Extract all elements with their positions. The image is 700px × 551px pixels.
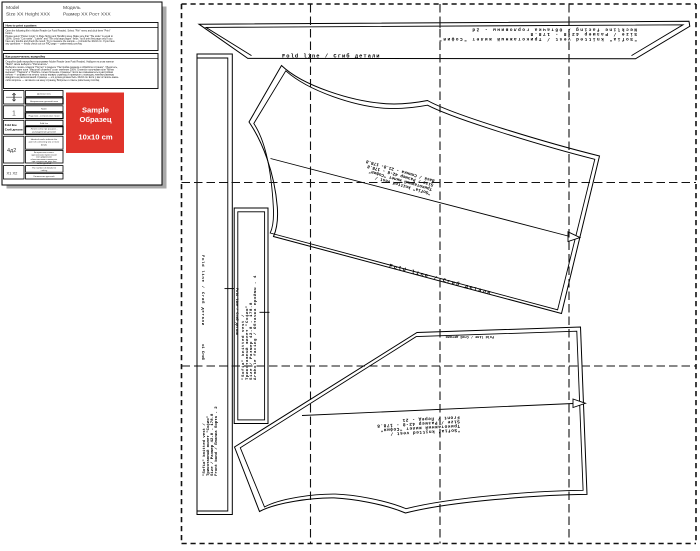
svg-text:Образец: Образец: [79, 115, 111, 124]
svg-text:Size XX Height XXX: Size XX Height XXX: [6, 12, 51, 18]
svg-text:Armhole facing / Обтачка пройм: Armhole facing / Обтачка проймы - 4: [253, 275, 258, 380]
svg-text:Размер XX Рост XXX: Размер XX Рост XXX: [63, 12, 111, 18]
svg-text:Линия сгиба при раскрое -: Линия сгиба при раскрое -: [31, 129, 58, 131]
svg-text:Fold line / Сгиб детали: Fold line / Сгиб детали: [282, 53, 381, 60]
svg-text:10x10 cm: 10x10 cm: [78, 133, 112, 142]
svg-text:details: details: [41, 143, 48, 146]
svg-text:Notch: Notch: [41, 108, 47, 111]
svg-text:Open the following file in Ado: Open the following file in Adobe Reader …: [6, 30, 111, 33]
svg-text:How to print a pattern: How to print a pattern: [6, 23, 37, 27]
svg-text:более деталей: более деталей: [37, 162, 52, 165]
svg-text:Направление долевой нити: Направление долевой нити: [30, 100, 59, 103]
svg-text:Model: Model: [6, 5, 19, 11]
svg-text:Identical marks indicate the: Identical marks indicate the: [31, 138, 58, 141]
svg-text:Количество деталей: Количество деталей: [34, 175, 55, 178]
svg-text:Надсечки - контрольные точки: Надсечки - контрольные точки: [29, 116, 61, 118]
svg-text:Долевая нить: Долевая нить: [37, 94, 52, 96]
svg-text:либо вопросы — загляните на на: либо вопросы — загляните на нашу страниц…: [6, 79, 100, 82]
svg-text:1: 1: [12, 111, 16, 118]
svg-text:x1 Сгиб: x1 Сгиб: [200, 344, 205, 361]
svg-text:Fold line: Fold line: [40, 123, 49, 125]
svg-text:Front band / Планка борта - 2: Front band / Планка борта - 2: [214, 406, 219, 476]
svg-text:point of connecting two or mor: point of connecting two or more: [29, 141, 60, 144]
svg-text:cutting: cutting: [41, 169, 48, 172]
svg-text:any questions — kindly check o: any questions — kindly check out our FAQ…: [6, 43, 83, 46]
svg-text:Fold line: Fold line: [5, 123, 17, 127]
svg-text:X1 X2: X1 X2: [7, 171, 19, 176]
svg-text:Fold line / Сгиб детали: Fold line / Сгиб детали: [234, 288, 239, 335]
svg-text:Neckline facing / Обтачка горл: Neckline facing / Обтачка горловины - 2d: [471, 26, 637, 33]
svg-text:разъединение деталей: разъединение деталей: [32, 130, 56, 133]
svg-text:Sample: Sample: [82, 106, 109, 115]
svg-text:Fold line / Сгиб детали: Fold line / Сгиб детали: [200, 255, 205, 326]
svg-text:Fold line / Сгиб детали: Fold line / Сгиб детали: [446, 334, 494, 339]
svg-text:Как распечатать выкройку: Как распечатать выкройку: [6, 54, 46, 58]
svg-text:Сгиб детали: Сгиб детали: [5, 128, 23, 132]
svg-text:The number of details for: The number of details for: [32, 166, 57, 169]
svg-text:Модель: Модель: [63, 5, 81, 11]
svg-text:4д2: 4д2: [7, 148, 16, 154]
